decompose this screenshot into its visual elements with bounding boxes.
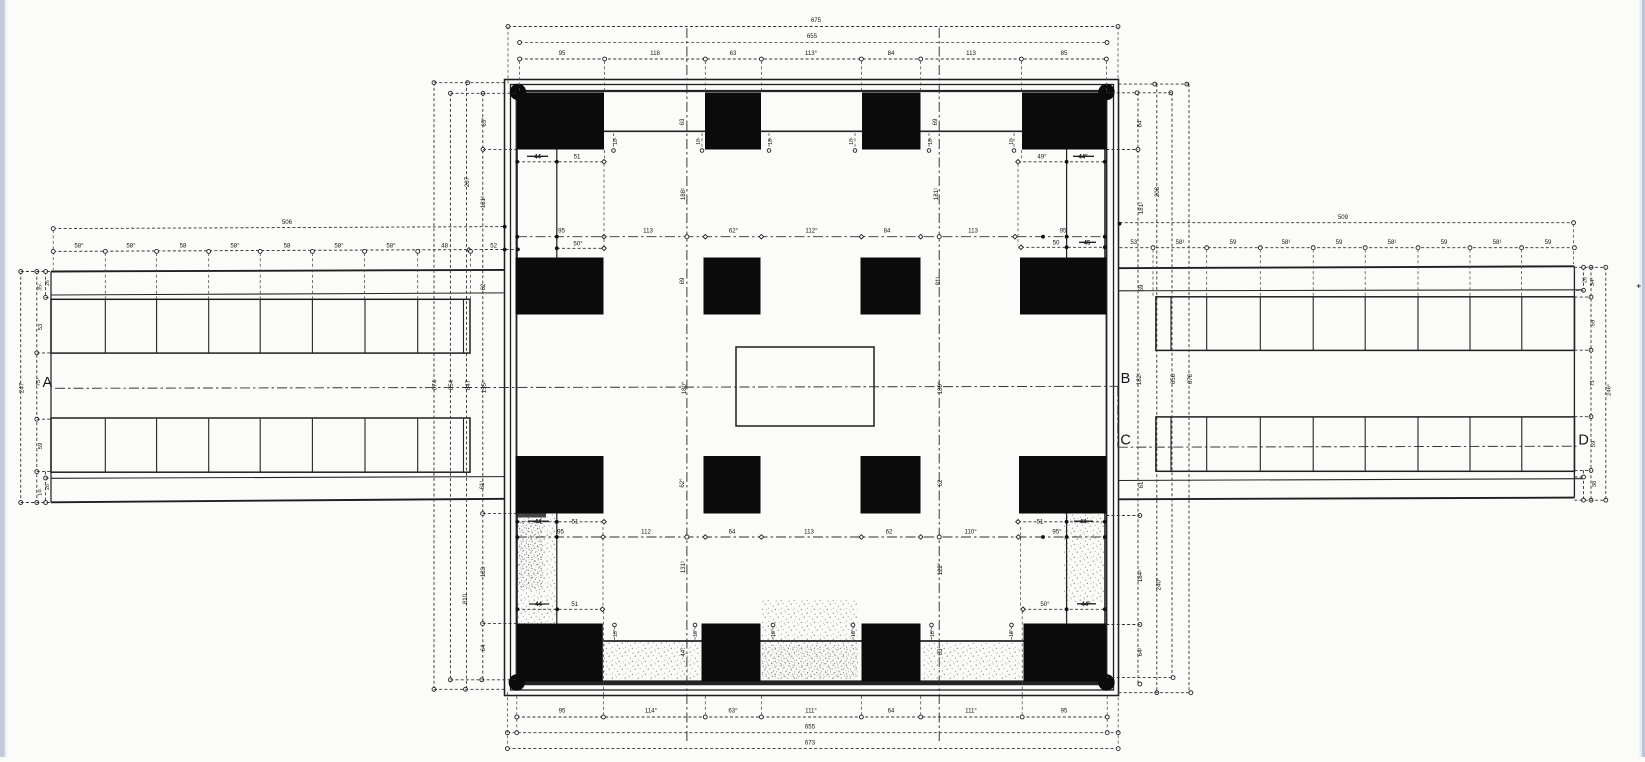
svg-text:95: 95 (1061, 708, 1068, 715)
svg-text:155¹: 155¹ (481, 381, 488, 393)
svg-text:18¹: 18¹ (613, 137, 619, 145)
svg-text:18°: 18° (851, 629, 857, 637)
svg-text:18¹: 18¹ (928, 137, 934, 145)
svg-text:44°: 44° (1078, 154, 1088, 161)
svg-text:113°: 113° (805, 50, 818, 57)
svg-text:18¹: 18¹ (768, 137, 774, 145)
svg-text:B: B (1121, 371, 1131, 387)
svg-text:676: 676 (1187, 373, 1194, 384)
svg-text:62: 62 (480, 283, 487, 290)
svg-text:62°: 62° (729, 228, 739, 235)
svg-text:64: 64 (729, 529, 736, 536)
svg-text:113: 113 (804, 529, 814, 536)
svg-text:188¹: 188¹ (680, 188, 687, 200)
svg-text:63: 63 (679, 118, 686, 125)
svg-text:58°: 58° (230, 243, 240, 250)
svg-text:95: 95 (559, 50, 566, 57)
svg-text:59: 59 (1441, 239, 1448, 246)
svg-text:51: 51 (572, 518, 579, 525)
svg-text:58°: 58° (386, 243, 396, 250)
svg-text:655: 655 (805, 724, 816, 731)
svg-text:182¹: 182¹ (1136, 373, 1143, 385)
svg-text:50: 50 (1053, 240, 1060, 247)
svg-text:247: 247 (19, 382, 26, 393)
svg-text:58¹: 58¹ (1388, 239, 1397, 246)
svg-text:18°: 18° (693, 629, 699, 637)
svg-text:48: 48 (441, 243, 448, 250)
svg-text:53: 53 (38, 324, 44, 330)
svg-text:85: 85 (1061, 50, 1068, 57)
svg-text:58°: 58° (334, 243, 344, 250)
svg-text:208: 208 (1154, 186, 1161, 197)
svg-text:81¹: 81¹ (935, 277, 942, 286)
svg-text:112: 112 (641, 529, 651, 536)
svg-text:58: 58 (284, 243, 291, 250)
svg-text:51: 51 (574, 154, 581, 161)
svg-text:59: 59 (1545, 239, 1552, 246)
svg-text:181¹: 181¹ (1138, 202, 1145, 214)
svg-text:62: 62 (937, 479, 944, 486)
svg-text:75¹: 75¹ (36, 378, 42, 386)
svg-text:26: 26 (45, 484, 51, 490)
svg-text:65°: 65° (481, 117, 488, 127)
svg-text:44: 44 (535, 601, 542, 608)
svg-text:64: 64 (1137, 120, 1144, 127)
svg-text:58: 58 (180, 243, 187, 250)
svg-text:180°: 180° (681, 381, 688, 394)
svg-text:44: 44 (534, 154, 541, 161)
svg-text:18¹: 18¹ (849, 137, 855, 145)
svg-text:58¹: 58¹ (1176, 239, 1185, 246)
svg-text:45: 45 (1084, 240, 1091, 247)
svg-text:14¹: 14¹ (38, 488, 44, 496)
svg-text:26: 26 (45, 280, 51, 286)
svg-text:95: 95 (558, 228, 565, 235)
svg-text:183: 183 (480, 566, 487, 577)
svg-text:111°: 111° (805, 708, 817, 715)
svg-text:A: A (42, 375, 52, 391)
svg-text:69: 69 (679, 277, 686, 284)
svg-text:181¹: 181¹ (933, 188, 940, 200)
svg-text:44°: 44° (680, 647, 687, 657)
svg-text:118: 118 (650, 50, 660, 57)
svg-text:62°: 62° (679, 478, 686, 488)
svg-text:184¹: 184¹ (1137, 570, 1144, 582)
svg-text:18°: 18° (930, 629, 936, 637)
svg-text:131¹: 131¹ (680, 561, 687, 573)
svg-text:18°: 18° (1009, 629, 1015, 637)
svg-text:18°: 18° (613, 629, 619, 637)
svg-text:58°: 58° (126, 243, 136, 250)
svg-text:847: 847 (465, 379, 472, 390)
svg-text:59: 59 (38, 443, 44, 449)
svg-text:59: 59 (1591, 320, 1597, 326)
svg-text:95: 95 (1060, 228, 1067, 235)
svg-text:50°: 50° (1040, 601, 1050, 608)
svg-text:62: 62 (886, 529, 893, 536)
svg-text:674: 674 (432, 379, 439, 390)
svg-text:50°: 50° (573, 241, 583, 248)
svg-text:D: D (1578, 432, 1588, 448)
svg-text:113: 113 (966, 50, 976, 57)
svg-text:110°: 110° (965, 529, 978, 536)
svg-text:51: 51 (571, 601, 578, 608)
svg-text:112°: 112° (805, 228, 818, 235)
svg-text:84: 84 (888, 50, 895, 57)
svg-text:59: 59 (1591, 441, 1597, 447)
svg-text:69: 69 (1138, 284, 1145, 291)
svg-text:58¹: 58¹ (1493, 239, 1502, 246)
svg-text:35¹: 35¹ (38, 283, 44, 291)
svg-text:58¹: 58¹ (1282, 239, 1291, 246)
svg-text:63: 63 (730, 50, 737, 57)
svg-text:207: 207 (464, 176, 471, 187)
svg-text:111°: 111° (965, 708, 977, 715)
svg-text:64: 64 (480, 644, 487, 651)
svg-text:113: 113 (968, 228, 978, 235)
svg-text:34¹: 34¹ (1590, 278, 1596, 286)
svg-text:95: 95 (557, 529, 564, 536)
svg-text:655: 655 (807, 33, 818, 40)
svg-text:113: 113 (643, 228, 653, 235)
svg-text:52: 52 (490, 243, 497, 250)
svg-text:673: 673 (805, 740, 816, 747)
svg-text:26: 26 (1583, 277, 1589, 283)
svg-text:C: C (1120, 433, 1130, 449)
svg-text:61¹: 61¹ (479, 481, 486, 490)
svg-text:675: 675 (811, 17, 822, 24)
svg-text:506: 506 (282, 219, 293, 226)
svg-text:51: 51 (1037, 518, 1044, 525)
svg-text:95°: 95° (1052, 529, 1062, 536)
svg-text:84: 84 (884, 228, 891, 235)
svg-text:59: 59 (1230, 239, 1237, 246)
svg-text:18°: 18° (771, 629, 777, 637)
svg-text:656: 656 (1170, 373, 1177, 384)
svg-text:95: 95 (559, 708, 566, 715)
svg-text:810: 810 (462, 593, 469, 604)
svg-text:44°: 44° (1081, 601, 1091, 608)
svg-text:53: 53 (1130, 239, 1137, 246)
svg-text:58°: 58° (74, 243, 84, 250)
svg-text:61: 61 (1138, 481, 1145, 488)
svg-text:63°: 63° (728, 708, 738, 715)
svg-text:854: 854 (448, 379, 455, 390)
svg-text:18¹: 18¹ (696, 137, 702, 145)
svg-text:63: 63 (937, 648, 944, 655)
svg-text:180°: 180° (937, 381, 944, 394)
svg-text:122°: 122° (937, 562, 944, 575)
svg-text:59: 59 (1336, 239, 1343, 246)
svg-text:69: 69 (932, 118, 939, 125)
svg-text:114°: 114° (645, 708, 658, 715)
svg-text:71: 71 (1590, 380, 1596, 386)
svg-text:38: 38 (1592, 481, 1598, 487)
svg-text:49°: 49° (1037, 154, 1047, 161)
svg-text:18¹: 18¹ (1009, 137, 1015, 145)
svg-text:246¹: 246¹ (1607, 384, 1613, 396)
svg-text:509: 509 (1338, 214, 1349, 221)
svg-text:240°: 240° (1156, 577, 1163, 590)
svg-text:181¹: 181¹ (480, 196, 487, 208)
svg-text:64: 64 (888, 708, 895, 715)
svg-text:64¹: 64¹ (1137, 648, 1144, 657)
